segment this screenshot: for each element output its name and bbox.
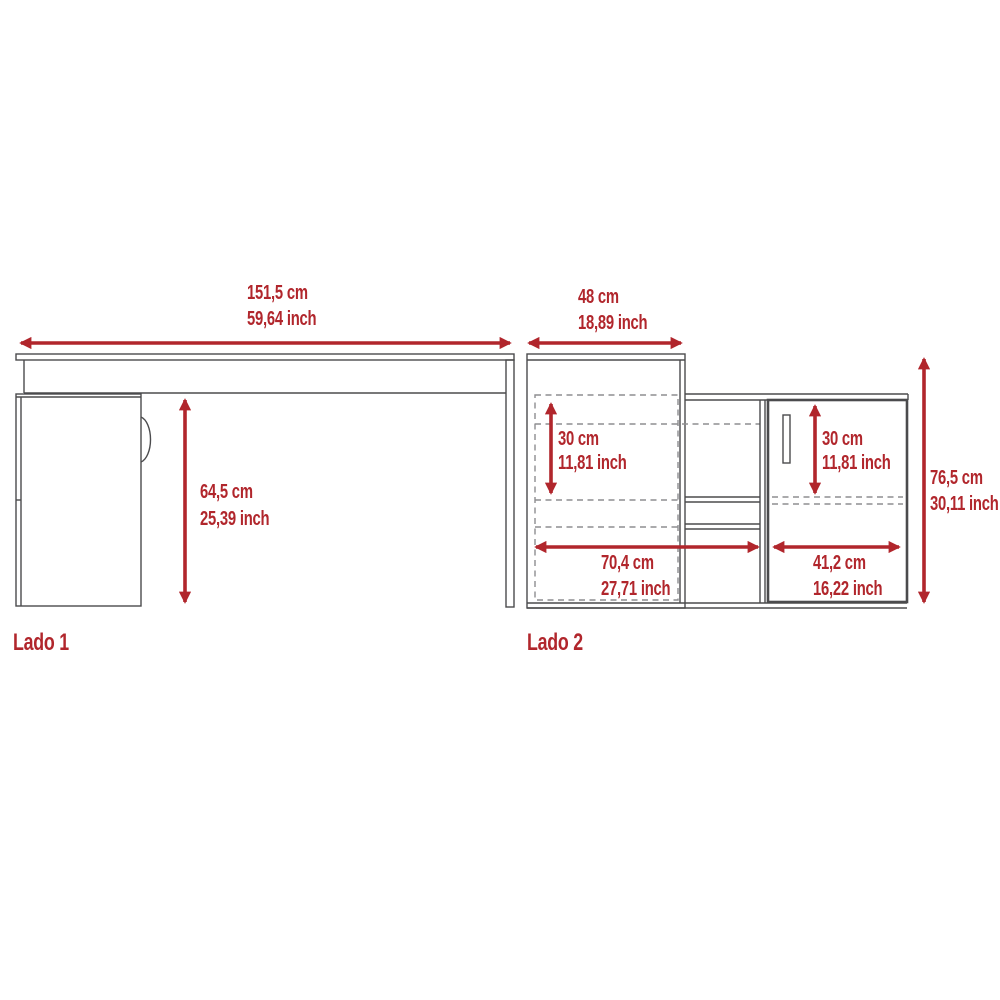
lado2-total-height-inch: 30,11 inch bbox=[930, 491, 999, 517]
lado2-right-clearance-cm: 30 cm bbox=[822, 427, 891, 451]
lado2-left-clearance-inch: 11,81 inch bbox=[558, 451, 627, 475]
lado2-top-width-label: 48 cm 18,89 inch bbox=[578, 284, 647, 336]
lado2-bottom-right-width-inch: 16,22 inch bbox=[813, 576, 882, 602]
lado2-bottom-left-width-label: 70,4 cm 27,71 inch bbox=[601, 550, 670, 602]
furniture-dimension-diagram: 151,5 cm 59,64 inch 64,5 cm 25,39 inch 4… bbox=[0, 0, 1000, 1000]
lado2-door-handle-icon bbox=[783, 415, 790, 463]
lado1-door-handle-icon bbox=[141, 417, 151, 462]
lado1-width-label: 151,5 cm 59,64 inch bbox=[247, 280, 316, 332]
lado1-width-cm: 151,5 cm bbox=[247, 280, 316, 306]
lado1-height-label: 64,5 cm 25,39 inch bbox=[200, 479, 269, 533]
lado2-bottom-left-width-inch: 27,71 inch bbox=[601, 576, 670, 602]
lado2-top-width-cm: 48 cm bbox=[578, 284, 647, 310]
lado1-height-cm: 64,5 cm bbox=[200, 479, 269, 506]
lado2-right-clearance-inch: 11,81 inch bbox=[822, 451, 891, 475]
line-drawing bbox=[0, 0, 1000, 1000]
lado1-height-inch: 25,39 inch bbox=[200, 506, 269, 533]
lado2-bottom-left-width-cm: 70,4 cm bbox=[601, 550, 670, 576]
lado1-dimension-arrows bbox=[21, 343, 510, 602]
lado2-bottom-right-width-cm: 41,2 cm bbox=[813, 550, 882, 576]
lado2-total-height-label: 76,5 cm 30,11 inch bbox=[930, 465, 999, 517]
lado1-cabinet bbox=[16, 394, 141, 606]
lado2-total-height-cm: 76,5 cm bbox=[930, 465, 999, 491]
lado1-width-inch: 59,64 inch bbox=[247, 306, 316, 332]
lado1-right-leg bbox=[506, 360, 514, 607]
lado2-right-clearance-label: 30 cm 11,81 inch bbox=[822, 427, 891, 475]
lado1-desktop bbox=[16, 354, 514, 360]
lado2-left-clearance-cm: 30 cm bbox=[558, 427, 627, 451]
lado2-top-width-inch: 18,89 inch bbox=[578, 310, 647, 336]
lado1-view-label: Lado 1 bbox=[13, 629, 69, 657]
lado2-view-label: Lado 2 bbox=[527, 629, 583, 657]
lado2-bottom-right-width-label: 41,2 cm 16,22 inch bbox=[813, 550, 882, 602]
lado2-left-clearance-label: 30 cm 11,81 inch bbox=[558, 427, 627, 475]
